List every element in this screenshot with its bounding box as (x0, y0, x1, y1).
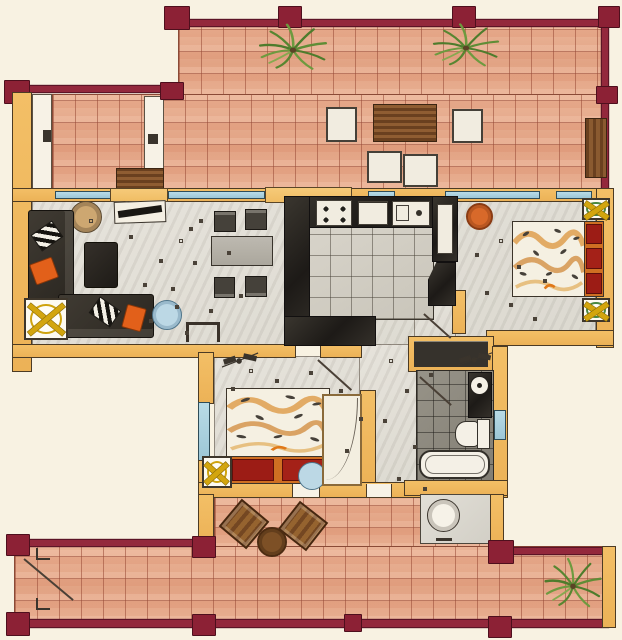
railing-post (160, 82, 184, 100)
stove (316, 200, 352, 226)
dining-chair (245, 276, 267, 297)
terrace-seat-cushion (367, 151, 402, 183)
x-side-table (24, 298, 68, 340)
round-wood-table (257, 527, 287, 557)
basin-drain-dot (477, 383, 482, 388)
floor-speckles (250, 370, 252, 372)
washing-machine (427, 499, 460, 532)
lower-terrace-east-post (602, 546, 616, 628)
terrace-divider-west (32, 94, 52, 190)
tv-screen (118, 205, 163, 218)
red-pillow (232, 459, 274, 481)
railing-post (596, 86, 618, 104)
railing-post (598, 6, 620, 28)
red-pillow (586, 224, 602, 244)
bathtub-inner (425, 455, 485, 474)
railing-post (488, 616, 512, 638)
divider-latch (43, 130, 51, 142)
palm-plant-icon (256, 20, 330, 78)
bed-east-duvet (512, 221, 586, 297)
bedroom-south-west-stub (198, 352, 214, 404)
terrace-door-gap (366, 484, 392, 497)
x-nightstand (202, 456, 232, 488)
round-blue-table (152, 300, 182, 330)
toilet-tank (477, 419, 490, 449)
floor-speckles (390, 360, 392, 362)
wall-console (186, 322, 220, 342)
window (168, 191, 265, 199)
bathroom-window (494, 410, 506, 440)
stair-mark (36, 548, 50, 560)
stair-mark (36, 598, 50, 610)
lower-railing-northwest (12, 540, 210, 546)
wardrobe (322, 394, 362, 486)
kitchen-counter-bottom-run (284, 316, 376, 346)
bathtub (419, 450, 490, 479)
sink-faucet-dot (416, 210, 422, 216)
utility-door-mark (436, 538, 452, 541)
bedroom-east-south-wall (486, 330, 614, 346)
floor-speckles (90, 220, 92, 222)
plant-icon (542, 554, 604, 616)
terrace-seat-cushion (403, 154, 438, 187)
orange-stool (466, 203, 493, 230)
drawer-unit (358, 201, 388, 225)
terrace-railing-top (170, 20, 612, 26)
railing-post (192, 536, 216, 558)
railing-post (6, 612, 30, 636)
dining-chair (214, 211, 236, 232)
terrace-seat-cushion (452, 109, 483, 143)
bedroom-south-top-wall (320, 344, 362, 358)
x-nightstand (582, 198, 610, 220)
bedroom-south-east-wall (360, 390, 376, 484)
sink-basin (396, 205, 409, 221)
window (445, 191, 540, 199)
terrace-seat-cushion (326, 107, 357, 142)
upper-terrace-floor-top (178, 24, 602, 96)
ceiling-fan-sketch-icon (222, 350, 260, 370)
red-pillow (586, 248, 602, 269)
divider-latch (148, 134, 158, 144)
utility-east-wall (490, 494, 504, 546)
kitchen-floor (308, 226, 434, 320)
palm-plant-icon (430, 20, 502, 74)
dining-chair (245, 209, 267, 230)
lower-terrace-floor-main (14, 546, 606, 624)
railing-post (344, 614, 362, 632)
dining-chair (214, 277, 235, 298)
floor-speckles (500, 240, 502, 242)
window (55, 191, 112, 199)
lower-railing-south (12, 620, 608, 627)
wardrobe-door-arc (326, 398, 358, 480)
bedroom-south-window (198, 402, 210, 462)
x-nightstand (582, 298, 610, 322)
tall-cabinet-front (437, 204, 453, 254)
bed-south-duvet (226, 388, 330, 458)
tv-sideboard (114, 200, 167, 224)
floor-speckles (180, 240, 182, 242)
railing-post (6, 534, 30, 556)
railing-post (192, 614, 216, 636)
planter-box (116, 168, 164, 190)
railing-post (488, 540, 514, 564)
dining-table (211, 236, 273, 266)
red-pillow (586, 273, 602, 294)
terrace-bench (585, 118, 607, 178)
railing-post (164, 6, 190, 30)
round-side-table (70, 201, 102, 233)
terrace-lounge-table (373, 104, 437, 142)
toilet-bowl (455, 421, 479, 447)
coffee-table (84, 242, 118, 288)
floor-plan-canvas (0, 0, 622, 640)
ceiling-lamp-sketch-icon (458, 350, 494, 368)
terrace-railing-west (10, 86, 180, 92)
